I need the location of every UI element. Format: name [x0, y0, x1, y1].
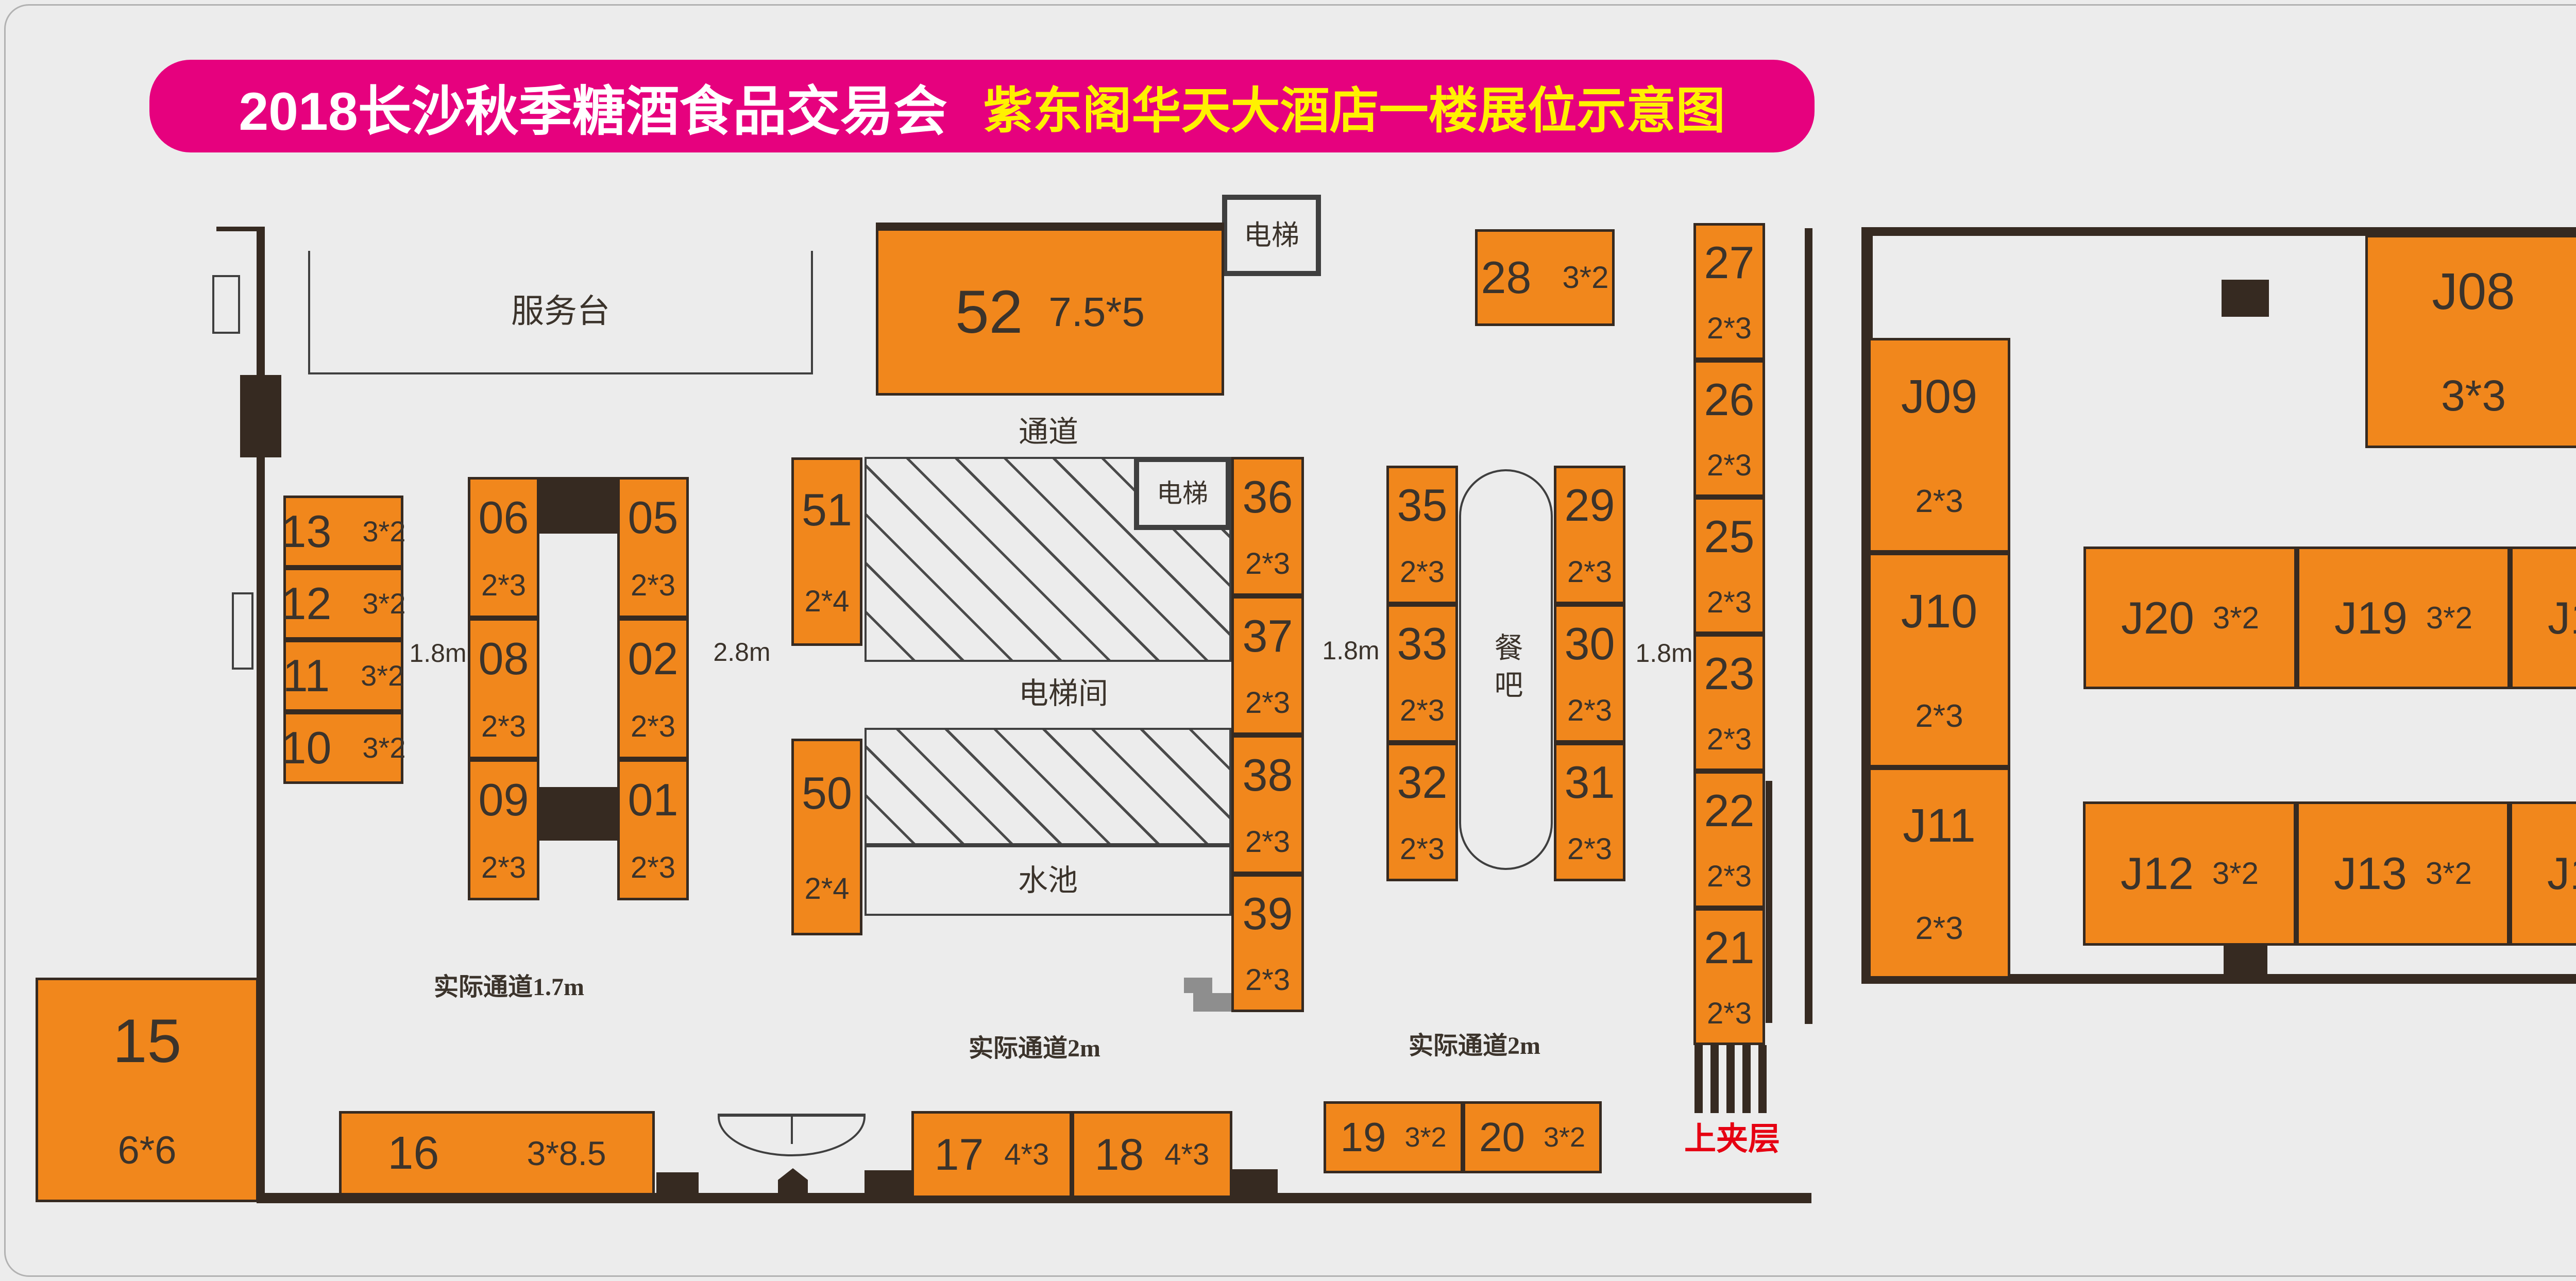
booth-J10: J102*3	[1868, 553, 2010, 767]
mezzanine-pillar-0	[2222, 280, 2269, 317]
booth-number: J20	[2121, 595, 2194, 641]
mezzanine-plan: J092*3J102*3J112*3J083*3J073*3J063*2J053…	[0, 0, 2576, 1281]
booth-number: J19	[2334, 595, 2408, 641]
booth-number: J10	[1901, 588, 1977, 635]
booth-size: 2*3	[1915, 913, 1963, 945]
booth-number: J09	[1901, 373, 1977, 420]
booth-J08: J083*3	[2365, 235, 2576, 448]
booth-number: J08	[2432, 266, 2515, 317]
booth-J11: J112*3	[1868, 767, 2010, 979]
booth-number: J12	[2121, 851, 2194, 896]
booth-J12: J123*2	[2083, 801, 2296, 946]
booth-size: 3*2	[2213, 603, 2259, 634]
floor-plan-canvas: 2018长沙秋季糖酒食品交易会 紫东阁华天大酒店一楼展位示意图 紫东阁华天大酒店…	[0, 0, 2576, 1281]
mezzanine-pillar-2	[2224, 945, 2267, 976]
booth-size: 3*2	[2426, 858, 2472, 889]
booth-number: J13	[2334, 851, 2407, 896]
booth-J09: J092*3	[1868, 338, 2010, 553]
booth-number: J18	[2548, 595, 2576, 641]
booth-J18: J183*2	[2510, 546, 2576, 689]
booth-size: 3*3	[2441, 374, 2506, 417]
booth-J15: J153*2	[2510, 801, 2576, 946]
booth-J13: J133*2	[2296, 801, 2510, 946]
booth-J20: J203*2	[2083, 546, 2297, 689]
booth-number: J15	[2547, 851, 2576, 896]
booth-J19: J193*2	[2297, 546, 2510, 689]
booth-size: 2*3	[1915, 701, 1963, 732]
booth-size: 2*3	[1915, 486, 1963, 518]
booth-number: J11	[1903, 802, 1976, 849]
booth-size: 3*2	[2212, 858, 2259, 889]
booth-size: 3*2	[2426, 603, 2472, 634]
